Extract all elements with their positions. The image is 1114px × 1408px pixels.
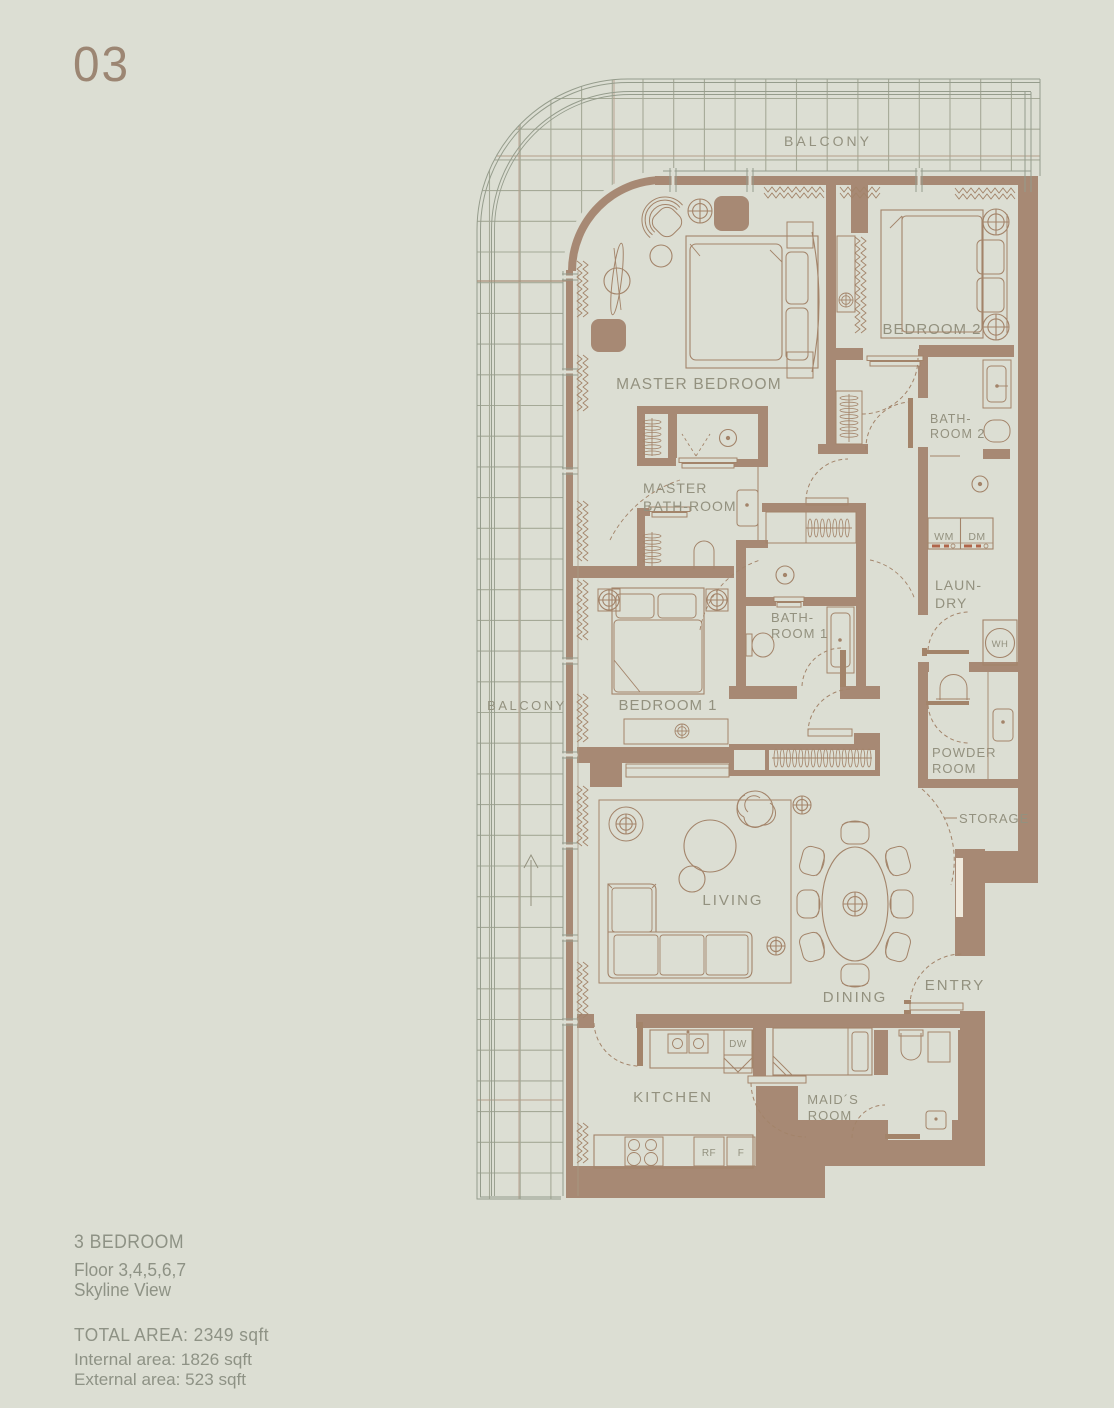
svg-text:WH: WH (992, 639, 1009, 650)
svg-text:3 BEDROOM: 3 BEDROOM (74, 1232, 184, 1253)
svg-text:DINING: DINING (823, 989, 888, 1006)
svg-text:BATH-: BATH- (771, 610, 814, 625)
svg-text:Internal area: 1826 sqft: Internal area: 1826 sqft (74, 1350, 252, 1369)
svg-text:External area: 523 sqft: External area: 523 sqft (74, 1370, 246, 1389)
svg-text:MASTER: MASTER (643, 480, 707, 496)
svg-text:DW: DW (729, 1039, 747, 1050)
svg-text:TOTAL AREA: 2349 sqft: TOTAL AREA: 2349 sqft (74, 1325, 269, 1345)
svg-text:BALCONY: BALCONY (784, 133, 872, 149)
svg-text:BEDROOM 2: BEDROOM 2 (882, 321, 981, 338)
svg-text:BEDROOM 1: BEDROOM 1 (618, 697, 717, 714)
svg-text:BATH-: BATH- (930, 412, 972, 426)
svg-text:ENTRY: ENTRY (925, 977, 986, 994)
svg-text:ROOM: ROOM (808, 1108, 852, 1123)
svg-text:03: 03 (73, 38, 130, 92)
svg-text:Skyline View: Skyline View (74, 1280, 172, 1300)
svg-text:DRY: DRY (935, 595, 967, 611)
svg-text:WM: WM (934, 531, 954, 543)
svg-text:DM: DM (968, 531, 985, 543)
svg-text:LAUN-: LAUN- (935, 577, 982, 593)
svg-text:Floor 3,4,5,6,7: Floor 3,4,5,6,7 (74, 1260, 186, 1280)
svg-text:MAID´S: MAID´S (807, 1092, 859, 1107)
svg-text:MASTER BEDROOM: MASTER BEDROOM (616, 376, 782, 393)
svg-text:BATH-ROOM: BATH-ROOM (643, 498, 737, 514)
svg-text:BALCONY: BALCONY (487, 698, 567, 713)
svg-text:STORAGE: STORAGE (959, 811, 1029, 826)
svg-text:POWDER: POWDER (932, 745, 997, 760)
svg-text:RF: RF (702, 1148, 716, 1159)
svg-text:F: F (738, 1148, 745, 1159)
svg-text:ROOM 1: ROOM 1 (771, 626, 828, 641)
svg-text:LIVING: LIVING (702, 892, 763, 909)
svg-text:ROOM: ROOM (932, 761, 976, 776)
svg-text:KITCHEN: KITCHEN (633, 1089, 713, 1106)
svg-text:ROOM 2: ROOM 2 (930, 427, 985, 441)
